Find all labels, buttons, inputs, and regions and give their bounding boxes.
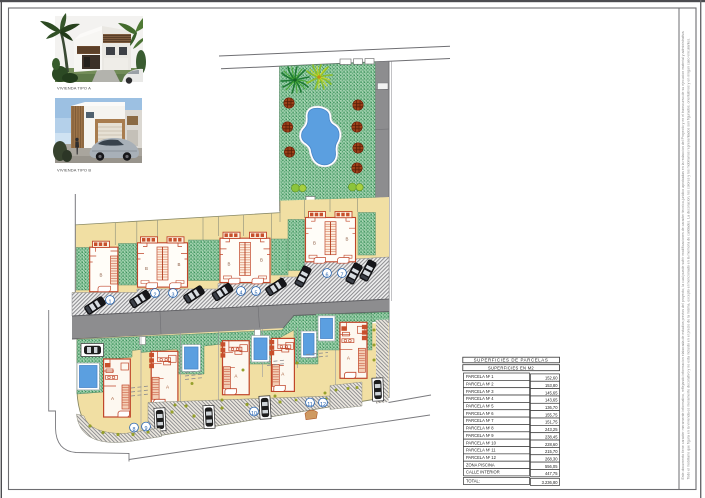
svg-text:7: 7 xyxy=(341,272,344,278)
svg-text:SUPERFICIES DE PARCELAS: SUPERFICIES DE PARCELAS xyxy=(474,358,549,363)
svg-text:2: 2 xyxy=(154,292,157,298)
svg-text:10: 10 xyxy=(251,411,257,417)
svg-text:PARCELA Nº 3: PARCELA Nº 3 xyxy=(466,389,494,394)
svg-text:152,60: 152,60 xyxy=(545,376,558,381)
svg-text:CALLE INTERIOR: CALLE INTERIOR xyxy=(466,470,500,475)
svg-text:268,30: 268,30 xyxy=(545,456,558,461)
svg-text:145,65: 145,65 xyxy=(545,390,558,395)
svg-text:PARCELA Nº 9: PARCELA Nº 9 xyxy=(466,433,494,438)
svg-text:11: 11 xyxy=(307,402,313,408)
svg-text:B: B xyxy=(260,257,263,262)
svg-text:PARCELA Nº 11: PARCELA Nº 11 xyxy=(466,448,496,453)
svg-text:B: B xyxy=(346,237,349,242)
svg-text:3.236,80: 3.236,80 xyxy=(542,480,559,485)
svg-text:B: B xyxy=(100,273,103,278)
svg-text:B: B xyxy=(145,266,148,271)
svg-text:B: B xyxy=(228,261,231,266)
svg-text:ZONA PISCINA: ZONA PISCINA xyxy=(466,462,495,467)
svg-text:9: 9 xyxy=(145,426,148,432)
svg-text:556,05: 556,05 xyxy=(545,464,558,469)
svg-text:TOTAL:: TOTAL: xyxy=(466,479,480,484)
svg-text:VIVIENDA TIPO B: VIVIENDA TIPO B xyxy=(57,168,91,173)
svg-text:PARCELA Nº 10: PARCELA Nº 10 xyxy=(466,440,497,445)
svg-text:447,75: 447,75 xyxy=(545,471,558,476)
svg-text:SUPERFICIES EN M2: SUPERFICIES EN M2 xyxy=(488,365,534,370)
svg-text:12: 12 xyxy=(320,402,326,408)
svg-text:155,75: 155,75 xyxy=(545,412,558,417)
svg-text:215,70: 215,70 xyxy=(545,449,558,454)
svg-text:151,75: 151,75 xyxy=(545,420,558,425)
svg-text:1: 1 xyxy=(109,299,112,305)
svg-text:PARCELA Nº 6: PARCELA Nº 6 xyxy=(466,411,494,416)
svg-text:143,65: 143,65 xyxy=(545,398,558,403)
svg-text:B: B xyxy=(313,241,316,246)
svg-text:136,70: 136,70 xyxy=(545,405,558,410)
svg-text:PARCELA Nº 5: PARCELA Nº 5 xyxy=(466,404,494,409)
svg-text:153,80: 153,80 xyxy=(545,383,558,388)
svg-text:238,45: 238,45 xyxy=(545,434,558,439)
svg-text:8: 8 xyxy=(133,427,136,433)
svg-text:4: 4 xyxy=(240,290,243,296)
svg-text:PARCELA Nº 2: PARCELA Nº 2 xyxy=(466,381,494,386)
svg-text:3: 3 xyxy=(172,292,175,298)
svg-text:VIVIENDA TIPO A: VIVIENDA TIPO A xyxy=(57,86,91,91)
svg-text:243,25: 243,25 xyxy=(545,427,558,432)
svg-text:PARCELA Nº 1: PARCELA Nº 1 xyxy=(466,374,494,379)
svg-text:PARCELA Nº 7: PARCELA Nº 7 xyxy=(466,418,494,423)
svg-text:6: 6 xyxy=(326,272,329,278)
svg-text:5: 5 xyxy=(255,290,258,296)
svg-text:B: B xyxy=(178,262,181,267)
svg-text:Todo el mobiliario que figura: Todo el mobiliario que figura en la vivi… xyxy=(686,38,690,480)
svg-text:PARCELA Nº 4: PARCELA Nº 4 xyxy=(466,396,494,401)
svg-text:PARCELA Nº 12: PARCELA Nº 12 xyxy=(466,455,497,460)
svg-text:PARCELA Nº 8: PARCELA Nº 8 xyxy=(466,426,494,431)
svg-text:228,60: 228,60 xyxy=(545,442,558,447)
svg-text:Este documento tiene caracter: Este documento tiene caracter meramente … xyxy=(681,31,685,480)
